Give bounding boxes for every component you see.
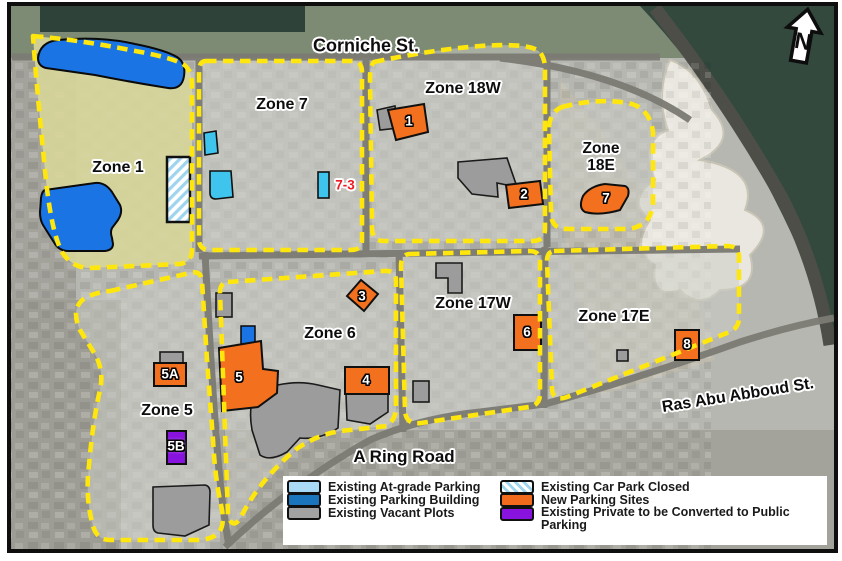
legend-swatch-new-parking bbox=[500, 493, 534, 507]
legend-swatch-vacant-plots bbox=[287, 506, 321, 520]
vacant-plot-17w-b bbox=[413, 381, 429, 402]
zone-label-6: Zone 6 bbox=[304, 325, 356, 343]
at-grade-zone7-site73 bbox=[318, 172, 329, 198]
legend-swatch-at-grade bbox=[287, 480, 321, 494]
legend-swatch-parking-building bbox=[287, 493, 321, 507]
site-label-4: 4 bbox=[362, 373, 370, 388]
legend-item-parking-building: Existing Parking Building bbox=[287, 493, 479, 507]
legend-label-vacant-plots: Existing Vacant Plots bbox=[328, 507, 454, 520]
site-label-8: 8 bbox=[683, 337, 691, 352]
legend-label-parking-building: Existing Parking Building bbox=[328, 494, 479, 507]
at-grade-zone7-b bbox=[210, 171, 233, 199]
site-label-7-3: 7-3 bbox=[335, 178, 355, 193]
legend-item-private-converted: Existing Private to be Converted to Publ… bbox=[500, 506, 827, 532]
zone-label-18w: Zone 18W bbox=[425, 80, 501, 98]
zone-label-7: Zone 7 bbox=[256, 96, 308, 114]
site-label-2: 2 bbox=[520, 187, 528, 202]
legend-item-car-park-closed: Existing Car Park Closed bbox=[500, 480, 690, 494]
legend-swatch-private-converted bbox=[500, 507, 534, 521]
site-label-6: 6 bbox=[523, 325, 531, 340]
parking-zones-map: N Corniche St. A Ring Road Ras Abu Abbou… bbox=[0, 0, 842, 561]
vacant-plot-5b bbox=[153, 485, 210, 536]
zone-label-18e: Zone 18E bbox=[582, 140, 619, 174]
legend-label-at-grade: Existing At-grade Parking bbox=[328, 481, 480, 494]
site-label-1: 1 bbox=[405, 114, 413, 129]
legend-item-at-grade: Existing At-grade Parking bbox=[287, 480, 480, 494]
parking-building-zone1-south bbox=[40, 183, 121, 251]
site-label-7: 7 bbox=[602, 191, 610, 206]
vacant-plot-17e bbox=[617, 350, 628, 361]
site-label-5a: 5A bbox=[161, 367, 178, 382]
zone-label-17e: Zone 17E bbox=[578, 308, 649, 326]
marina-water bbox=[40, 6, 305, 32]
site-label-5b: 5B bbox=[167, 439, 184, 454]
legend-label-private-converted: Existing Private to be Converted to Publ… bbox=[541, 506, 827, 532]
legend-label-car-park-closed: Existing Car Park Closed bbox=[541, 481, 690, 494]
legend-swatch-car-park-closed bbox=[500, 480, 534, 494]
street-label-a-ring-road: A Ring Road bbox=[353, 447, 454, 467]
site-label-5: 5 bbox=[235, 370, 243, 385]
closed-car-park-zone1 bbox=[167, 157, 190, 222]
site-label-3: 3 bbox=[358, 289, 366, 304]
zone-label-17w: Zone 17W bbox=[435, 295, 511, 313]
at-grade-zone7-a bbox=[204, 131, 218, 155]
street-label-corniche: Corniche St. bbox=[313, 36, 419, 57]
legend-item-vacant-plots: Existing Vacant Plots bbox=[287, 506, 454, 520]
zone-label-1: Zone 1 bbox=[92, 159, 144, 177]
zone-label-5: Zone 5 bbox=[141, 402, 193, 420]
map-legend: Existing At-grade Parking Existing Parki… bbox=[283, 476, 827, 545]
